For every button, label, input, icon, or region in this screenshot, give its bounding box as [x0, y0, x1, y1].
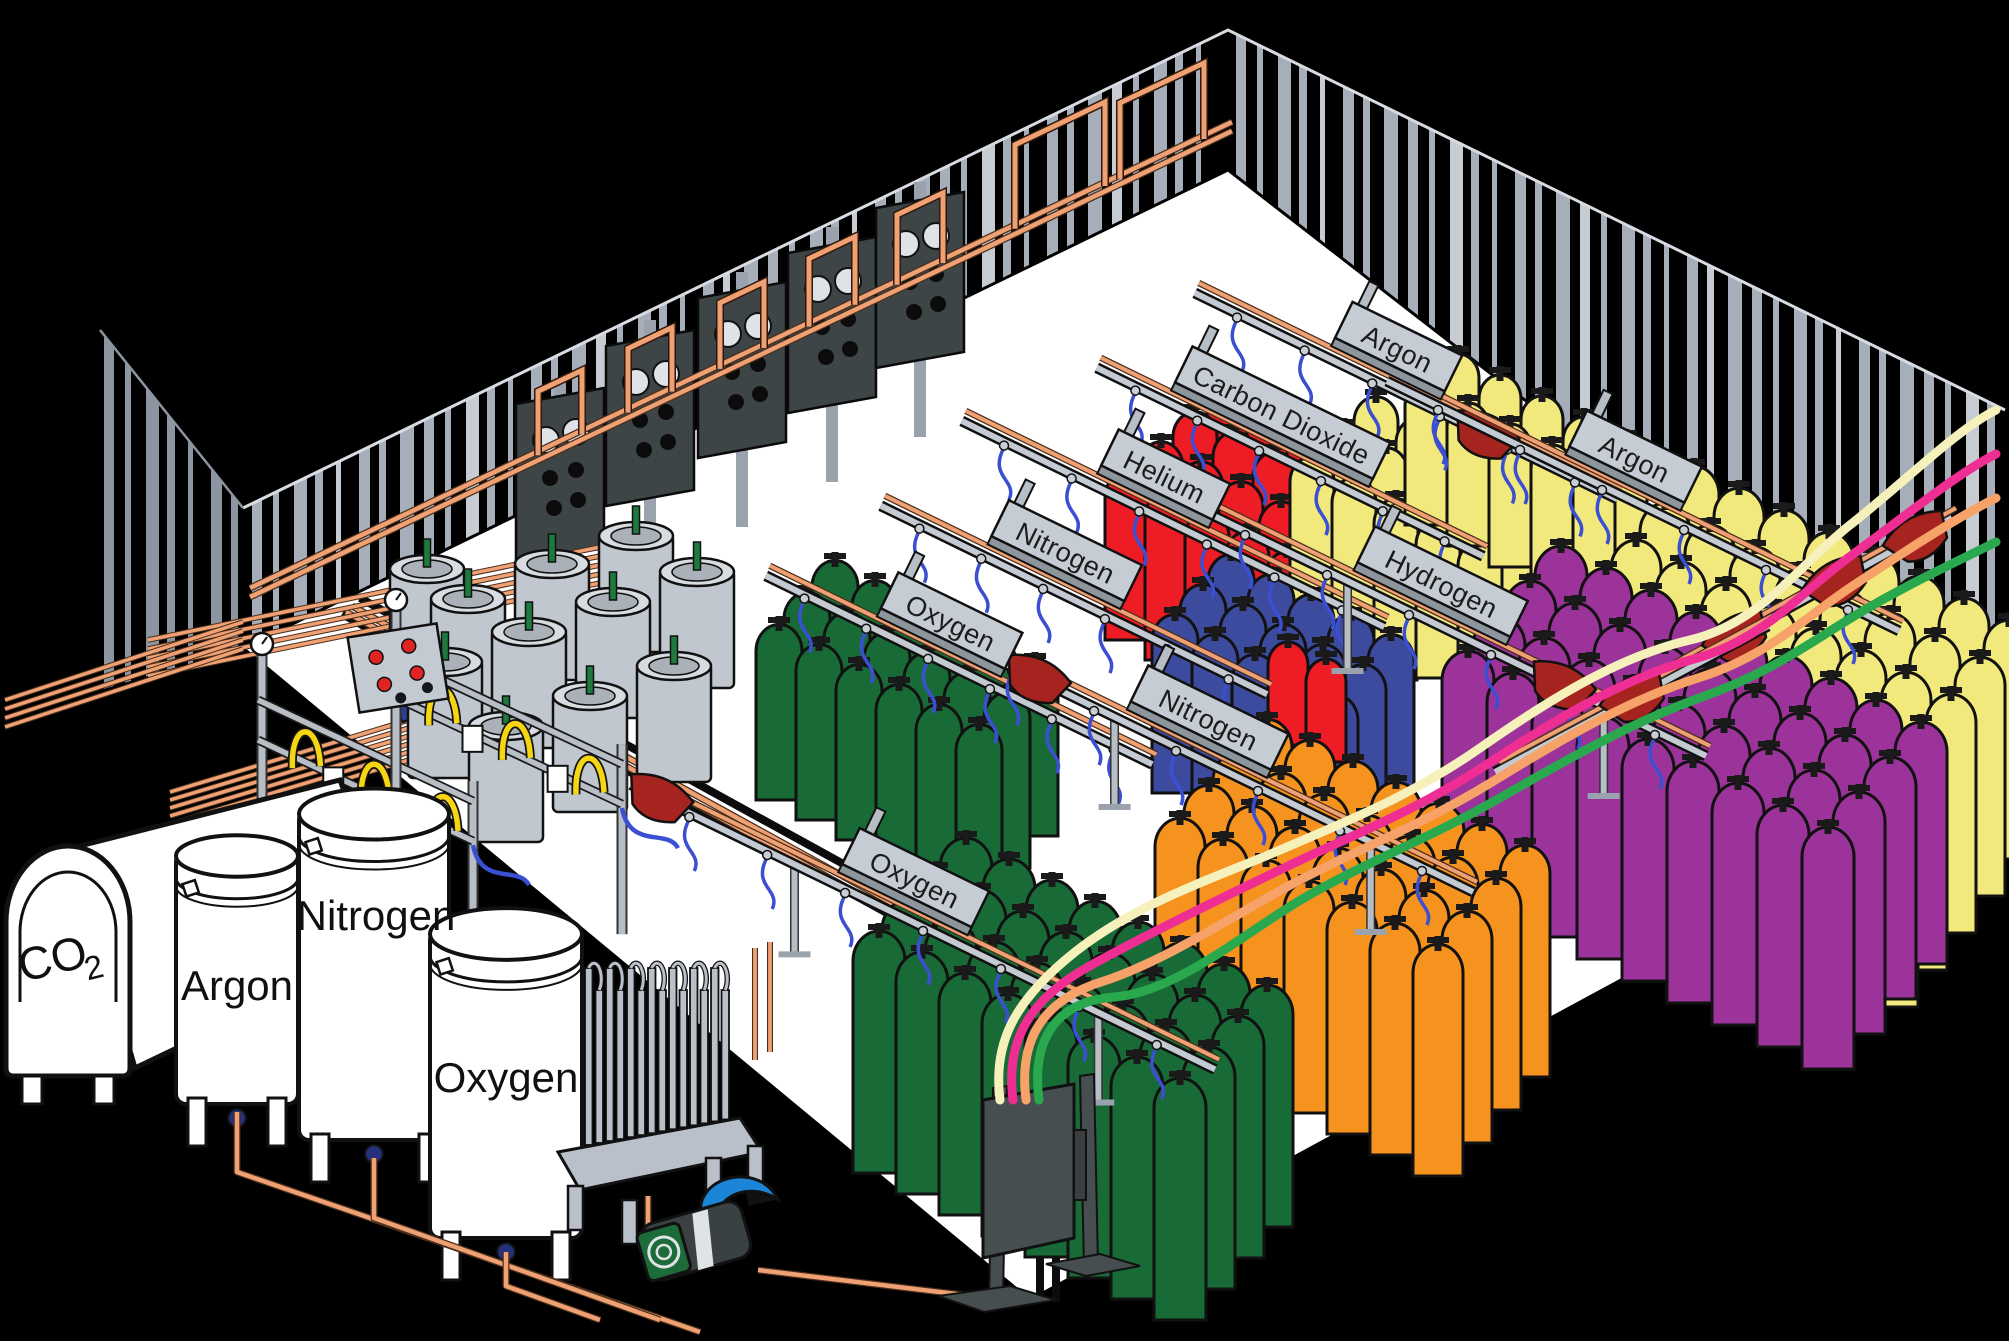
gas-cylinder: [1413, 944, 1463, 1176]
hose-clamp: [1067, 474, 1076, 483]
hose-clamp: [1440, 537, 1449, 546]
wall-stripe: [1343, 86, 1354, 267]
wall-stripe: [1047, 112, 1058, 257]
dewar-valve: [526, 602, 533, 630]
dewar-valve: [587, 666, 594, 694]
vaporizer-tube: [701, 990, 709, 1123]
dewar-valve: [671, 636, 678, 664]
gas-cylinder: [1802, 827, 1854, 1069]
wall-stripe: [1257, 44, 1263, 197]
band-tab: [436, 958, 452, 974]
panel-port: [728, 394, 744, 410]
wall-stripe: [294, 477, 307, 623]
hose-clamp: [1761, 565, 1770, 574]
dewar-body: [637, 664, 711, 782]
hose-clamp: [1253, 786, 1262, 795]
dewar-valve: [694, 542, 701, 570]
panel-port: [818, 349, 834, 365]
vaporizer-leg: [622, 1200, 637, 1244]
dewar-valve: [610, 572, 617, 600]
hose-clamp: [1486, 650, 1495, 659]
junction-box: [548, 766, 568, 792]
distribution-panel: [983, 1084, 1074, 1258]
hose-clamp: [1598, 486, 1607, 495]
cryogenic-dewar: [637, 636, 711, 782]
hose-clamp: [1650, 730, 1659, 739]
wall-stripe: [487, 386, 495, 530]
tank-leg: [268, 1098, 286, 1146]
vaporizer-tube: [617, 990, 625, 1139]
hose-clamp: [1417, 866, 1426, 875]
junction-box: [463, 726, 483, 752]
panel-port: [906, 304, 922, 320]
wall-stripe: [1278, 54, 1291, 218]
tank-leg: [188, 1098, 206, 1146]
plant-scene: Oxygen Nitrogen Helium Carbon Dioxide Ar…: [0, 0, 2009, 1341]
hose-clamp: [841, 889, 850, 898]
dewar-valve: [549, 534, 556, 562]
panel-port: [636, 442, 652, 458]
wall-stripe: [252, 499, 262, 644]
panel-port: [842, 341, 858, 357]
hose-clamp: [1000, 441, 1009, 450]
vaporizer-tube: [606, 968, 614, 1141]
wall-stripe: [445, 407, 451, 550]
hose-clamp: [1516, 446, 1525, 455]
hose-clamp: [862, 624, 871, 633]
wall-stripe: [1450, 139, 1463, 353]
dewar-valve: [633, 506, 640, 534]
hose-clamp: [977, 554, 986, 563]
wall-stripe: [1320, 75, 1325, 245]
hose-clamp: [1405, 611, 1414, 620]
wall-stripe: [315, 469, 323, 613]
manifold-control-panel: [516, 388, 604, 564]
wall-stripe: [1299, 65, 1307, 231]
argon-tank-label: Argon: [181, 962, 293, 1009]
band-tab: [305, 838, 321, 854]
vaporizer-tube: [648, 968, 656, 1133]
panel-port: [930, 296, 946, 312]
hose-clamp: [1241, 531, 1250, 540]
oxygen-tank-label: Oxygen: [434, 1054, 579, 1101]
gas-cylinder: [1154, 1078, 1206, 1320]
tank-top: [299, 789, 449, 840]
tank-body: [299, 810, 449, 1140]
wall-stripe: [104, 335, 114, 689]
hose-clamp: [1039, 584, 1048, 593]
band-tab: [182, 880, 198, 896]
wall-stripe: [379, 439, 386, 582]
wall-stripe: [336, 460, 341, 602]
wall-stripe: [466, 393, 479, 539]
wall-stripe: [1408, 118, 1418, 317]
panel-port: [546, 500, 562, 516]
hose-clamp: [1131, 386, 1140, 395]
wall-stripe: [1384, 106, 1398, 301]
hose-clamp: [1193, 416, 1202, 425]
hose-clamp: [996, 964, 1005, 973]
hose-clamp: [763, 851, 772, 860]
wall-stripe: [1003, 135, 1011, 279]
hose-clamp: [1368, 379, 1377, 388]
hose-clamp: [915, 524, 924, 533]
co2-tank-leg: [22, 1076, 42, 1104]
hose-clamp: [1378, 507, 1387, 516]
vaporizer-leg: [568, 1186, 583, 1230]
dewar-valve: [424, 539, 431, 567]
hose-clamp: [1172, 747, 1181, 756]
panel-port: [658, 404, 674, 420]
wall-stripe: [1363, 96, 1370, 280]
vaporizer-tube: [659, 990, 667, 1131]
vaporizer-tube: [627, 968, 635, 1137]
hose-clamp: [1300, 346, 1309, 355]
wall-stripe: [1429, 128, 1435, 330]
hose-clamp: [1316, 477, 1325, 486]
wall-stripe: [1236, 34, 1246, 184]
hose-clamp: [1255, 446, 1264, 455]
hose-clamp: [1047, 715, 1056, 724]
gas-plant-illustration: Oxygen Nitrogen Helium Carbon Dioxide Ar…: [0, 0, 2009, 1341]
panel-side: [1074, 1130, 1086, 1200]
hose-clamp: [1202, 540, 1211, 549]
vaporizer-tube: [596, 990, 604, 1143]
panel-port: [568, 462, 584, 478]
hose-clamp: [1323, 571, 1332, 580]
wall-stripe: [1067, 105, 1074, 248]
nitrogen-storage-tank: [299, 789, 449, 1185]
vaporizer-tube: [711, 968, 719, 1121]
hose-clamp: [1270, 573, 1279, 582]
dewar-valve: [465, 569, 472, 597]
hose-clamp: [1224, 675, 1233, 684]
hose-clamp: [924, 654, 933, 663]
vaporizer-tube: [680, 990, 688, 1127]
hose-clamp: [1679, 525, 1688, 534]
panel-port: [542, 470, 558, 486]
wall-stripe: [1556, 190, 1570, 435]
tank-top: [176, 835, 298, 876]
wall-stripe: [1471, 149, 1479, 365]
vaporizer-tube: [638, 990, 646, 1135]
hose-clamp: [1152, 1040, 1161, 1049]
wall-stripe: [125, 361, 131, 683]
hose-clamp: [985, 685, 994, 694]
hose-clamp: [1434, 406, 1443, 415]
wall-stripe: [146, 387, 159, 676]
tank-leg: [311, 1134, 329, 1182]
wall-stripe: [508, 377, 513, 519]
hose-clamp: [1090, 707, 1099, 716]
hose-clamp: [1135, 507, 1144, 516]
co2-tank-leg: [94, 1076, 114, 1104]
vaporizer-tube: [585, 968, 593, 1145]
tank-leg: [442, 1232, 460, 1280]
vaporizer-tube: [722, 990, 730, 1119]
hose-clamp: [685, 813, 694, 822]
wall-stripe: [359, 446, 370, 591]
vaporizer-tube: [690, 968, 698, 1125]
vaporizer-tube: [669, 968, 677, 1129]
panel-port: [752, 386, 768, 402]
wall-stripe: [167, 413, 175, 670]
panel-port: [570, 492, 586, 508]
hose-clamp: [919, 927, 928, 936]
panel-port: [660, 434, 676, 450]
nitrogen-tank-label: Nitrogen: [297, 892, 456, 939]
wall-stripe: [1492, 159, 1497, 378]
wall-stripe: [400, 425, 414, 572]
hose-clamp: [800, 594, 809, 603]
wall-stripe: [1535, 180, 1542, 413]
wall-stripe: [982, 143, 995, 289]
tank-leg: [552, 1232, 570, 1280]
hose-clamp: [1100, 615, 1109, 624]
wall-stripe: [1024, 127, 1029, 269]
valve-control-panel: [348, 623, 449, 712]
wall-stripe: [1515, 170, 1526, 401]
hose-clamp: [1233, 313, 1242, 322]
